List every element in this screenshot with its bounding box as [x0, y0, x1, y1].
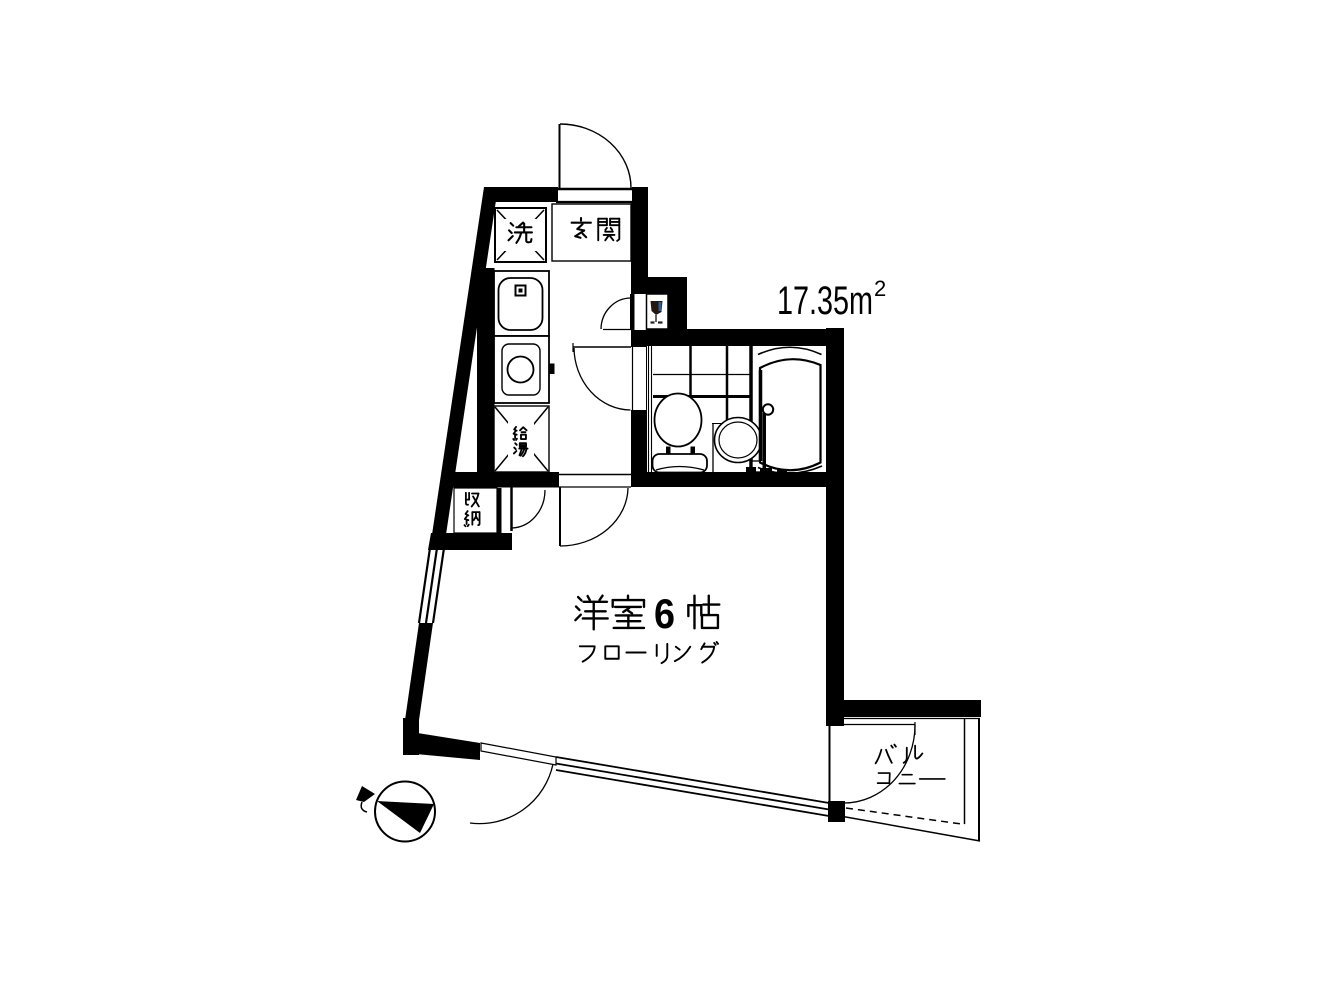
svg-text:2: 2: [874, 276, 886, 301]
svg-text:17.35m: 17.35m: [777, 279, 873, 323]
svg-text:6: 6: [654, 590, 675, 637]
